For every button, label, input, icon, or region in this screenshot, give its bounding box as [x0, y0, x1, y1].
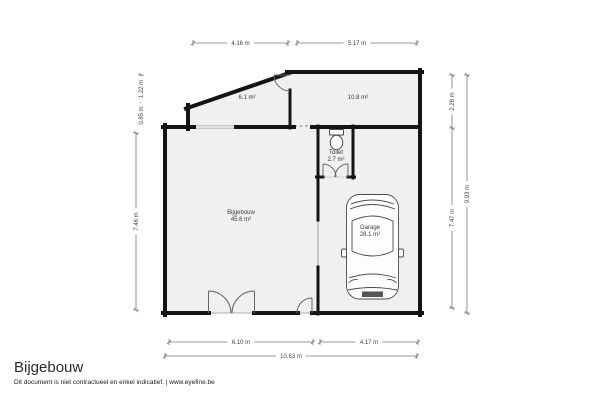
dim-top-b: 5.17 m — [348, 41, 366, 47]
car-license-plate — [362, 292, 383, 298]
page-title: Bijgebouw — [14, 360, 215, 377]
dim-right-a: 2.28 m — [450, 92, 456, 110]
garage-area: 28.1 m² — [360, 232, 380, 238]
dim-left-lower-group: 7.46 m — [132, 209, 140, 235]
bijgebouw-name: Bijgebouw — [227, 210, 255, 216]
dim-bottom-a: 6.10 m — [232, 340, 250, 346]
dim-left-a-group: 1.22 m — [137, 76, 145, 102]
dim-left-a: 1.22 m — [139, 80, 145, 98]
room-upper-left-area: 6.1 m² — [238, 95, 255, 101]
dim-right-a-group: 2.28 m — [448, 89, 456, 115]
dim-top-a: 4.16 m — [231, 41, 249, 47]
toilet-icon — [330, 130, 344, 150]
car-mirror-right — [399, 249, 404, 257]
bijgebouw-area: 45.6 m² — [231, 217, 251, 223]
room-upper-right-area: 10.8 m² — [348, 95, 368, 101]
car-body — [347, 195, 399, 300]
toilet-bowl — [330, 135, 342, 149]
car-mirror-left — [342, 249, 347, 257]
footer: Bijgebouw Dit document is niet contractu… — [14, 360, 215, 386]
dim-right-outer: 9.93 m — [465, 185, 471, 203]
dim-left-b: 0.85 m — [139, 106, 145, 124]
upper-block-fill — [188, 72, 420, 127]
toilet-name: Toilet — [329, 150, 343, 156]
dim-bottom-outer: 10.63 m — [280, 354, 302, 360]
dim-bottom-b: 4.17 m — [360, 340, 378, 346]
dim-right-outer-group: 9.93 m — [463, 181, 471, 207]
floor-plan-canvas: 6.1 m² 10.8 m² Toilet 2.7 m² Bijgebouw 4… — [0, 0, 600, 400]
footer-disclaimer: Dit document is niet contractueel en enk… — [14, 379, 215, 386]
toilet-tank — [330, 130, 344, 136]
floor-plan-page: 6.1 m² 10.8 m² Toilet 2.7 m² Bijgebouw 4… — [0, 0, 600, 400]
dim-left-lower: 7.46 m — [134, 212, 140, 230]
dim-left-b-group: 0.85 m — [137, 103, 145, 129]
garage-name: Garage — [360, 225, 381, 231]
toilet-area: 2.7 m² — [327, 157, 344, 163]
car-icon — [342, 195, 404, 300]
dim-right-b-group: 7.47 m — [448, 205, 456, 231]
dim-right-b: 7.47 m — [450, 209, 456, 227]
